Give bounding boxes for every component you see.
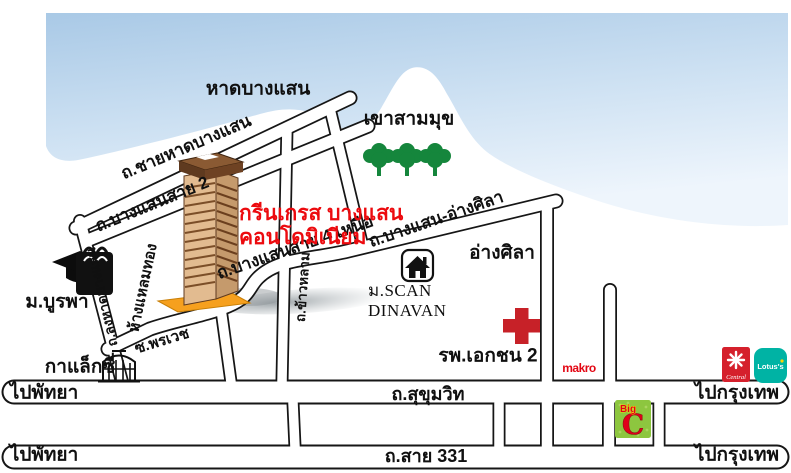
bigc-logo: C Big [615,400,651,441]
hill-area-label: เขาสามมุข [364,110,454,129]
to-pattaya-label-upper: ไปพัทยา [10,384,78,403]
to-pattaya-label-lower: ไปพัทยา [10,446,78,465]
scan-dinavan-label-line2: DINAVAN [368,302,446,319]
sai331-road-label: ถ.สาย 331 [385,447,468,465]
lotus-logo-text: Lotus's [757,362,783,371]
burapha-university-label: ม.บูรพา [25,293,88,312]
tree-icons [363,143,451,176]
angsila-area-label: อ่างศิลา [469,244,535,263]
lotus-logo: Lotus's [754,348,787,383]
bangsaen-location-map: Central Lotus's C Big หาดบางแสน เขาสามมุ… [0,0,791,473]
to-bangkok-label-lower: ไปกรุงเทพ [695,446,779,465]
sukhumvit-road-label: ถ.สุขุมวิท [391,385,464,403]
makro-logo-text: makro [562,362,596,374]
galaxy-label: กาแล็กซี่ [45,358,115,377]
scan-dinavan-label-line1: ม.SCAN [368,282,432,299]
house-icon [402,250,433,281]
bigc-word: Big [620,404,636,415]
beach-area-label: หาดบางแสน [206,80,310,99]
condo-title-line2: คอนโดมิเนียม [239,221,366,254]
hospital-label: รพ.เอกชน 2 [438,347,537,366]
to-bangkok-label-upper: ไปกรุงเทพ [695,384,779,403]
central-logo: Central [722,347,750,382]
red-cross-icon [503,308,540,344]
central-logo-text: Central [726,374,746,381]
